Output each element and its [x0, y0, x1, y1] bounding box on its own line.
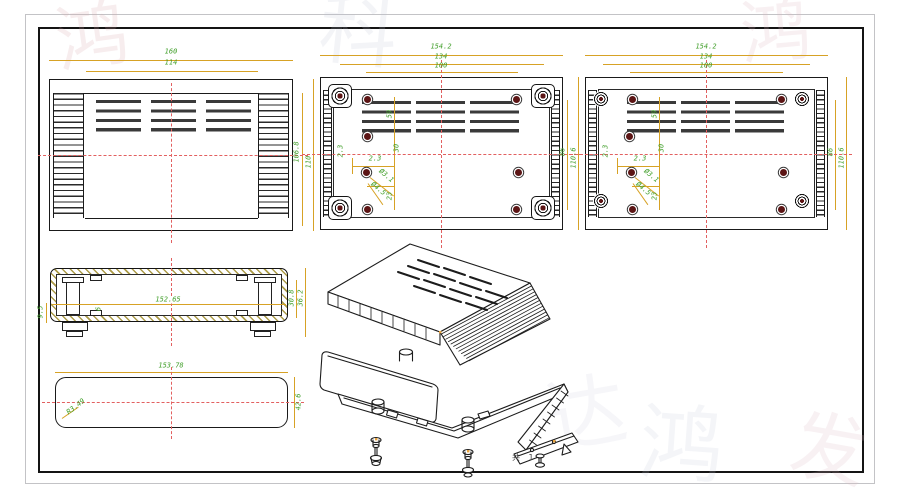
dim-wall: 6	[96, 307, 103, 311]
dim-hole-span: 23	[387, 192, 394, 200]
right-foot-pad	[254, 331, 271, 337]
bottom-rib	[236, 310, 248, 316]
screw-hole	[515, 169, 522, 176]
vent-slots	[96, 100, 141, 136]
isometric-exploded-view	[318, 234, 586, 480]
corner-screw-ring	[794, 91, 810, 107]
page-count-label: 共 1	[512, 452, 537, 463]
dim-screw-span: 100	[700, 63, 713, 70]
center-line	[171, 367, 172, 439]
dim-height: 42.6	[296, 394, 303, 411]
dim-line	[352, 158, 353, 174]
right-post	[258, 282, 272, 315]
vent-slots	[735, 101, 784, 137]
dim-line	[46, 303, 47, 323]
screw-hole	[364, 133, 371, 140]
dim-inner-height: 86	[560, 148, 567, 156]
screw-hole	[629, 96, 636, 103]
dim-line	[313, 79, 314, 231]
screw-hole	[364, 206, 371, 213]
dim-line	[86, 71, 258, 72]
dim-line	[305, 268, 306, 337]
dim-outer-width: 154.2	[430, 44, 451, 51]
vent-slots	[151, 100, 196, 136]
dim-foot-height: 9.5	[38, 306, 45, 319]
dim-hole-span: 23	[652, 192, 659, 200]
screw-hole	[513, 206, 520, 213]
dim-width: 152.65	[153, 297, 182, 304]
dim-foot-offset-x: 2.3	[369, 156, 382, 163]
vent-slots	[362, 101, 411, 137]
left-post	[66, 282, 80, 315]
dim-screw-span: 100	[435, 63, 448, 70]
vent-slots	[627, 101, 676, 137]
dim-vent-span: 59	[652, 110, 659, 118]
screw-hole	[778, 96, 785, 103]
screw-hole	[629, 206, 636, 213]
dim-outer-height: 110.6	[839, 147, 846, 168]
dim-line	[302, 93, 303, 226]
dim-inner-height: 30.8	[289, 290, 296, 307]
dim-line	[835, 100, 836, 210]
corner-screw-boss	[328, 196, 352, 220]
dim-line	[617, 158, 618, 174]
screw-hole	[780, 169, 787, 176]
screw-hole	[626, 133, 633, 140]
dim-inner-height: 106.8	[294, 141, 301, 162]
corner-screw-boss	[531, 196, 555, 220]
cad-drawing-sheet: { "sheet": { "page_label": "共 1" }, "wat…	[0, 0, 900, 500]
center-line	[570, 154, 852, 155]
dim-foot-offset-y: 2.3	[338, 145, 345, 158]
top-rib	[90, 275, 102, 281]
top-rib	[236, 275, 248, 281]
corner-screw-boss	[328, 84, 352, 108]
center-line	[706, 60, 707, 248]
dim-center-offset: 30	[659, 144, 666, 152]
dim-line	[567, 100, 568, 210]
screw-hole	[364, 96, 371, 103]
left-foot	[62, 322, 88, 331]
screw-hole	[628, 169, 635, 176]
dim-line	[52, 304, 286, 305]
dim-line	[617, 166, 659, 167]
dim-line	[352, 166, 394, 167]
dim-outer-width: 160	[165, 49, 178, 56]
screw-hole	[513, 96, 520, 103]
dim-foot-offset-x: 2.3	[634, 156, 647, 163]
screw-hole	[363, 169, 370, 176]
center-line	[441, 60, 442, 248]
center-line	[38, 155, 308, 156]
dim-outer-height: 110	[306, 156, 313, 169]
dim-inner-width: 114	[165, 60, 178, 67]
dim-width: 153.78	[158, 363, 183, 370]
dim-mid-width: 134	[700, 54, 713, 61]
vent-slots	[206, 100, 251, 136]
dim-center-offset: 30	[394, 144, 401, 152]
dim-outer-height: 110.6	[571, 147, 578, 168]
dim-vent-span: 59	[387, 110, 394, 118]
left-foot-pad	[66, 331, 83, 337]
dim-line	[366, 72, 518, 73]
corner-screw-ring	[593, 193, 609, 209]
dim-foot-offset-y: 2.3	[603, 145, 610, 158]
dim-outer-width: 154.2	[695, 44, 716, 51]
corner-screw-ring	[593, 91, 609, 107]
vent-slots	[470, 101, 519, 137]
dim-outer-height: 36.2	[298, 290, 305, 307]
dim-mid-width: 134	[435, 54, 448, 61]
right-foot	[250, 322, 276, 331]
screw-hole	[778, 206, 785, 213]
corner-screw-ring	[794, 193, 810, 209]
dim-inner-height: 86	[828, 148, 835, 156]
center-line	[171, 83, 172, 243]
corner-screw-boss	[531, 84, 555, 108]
